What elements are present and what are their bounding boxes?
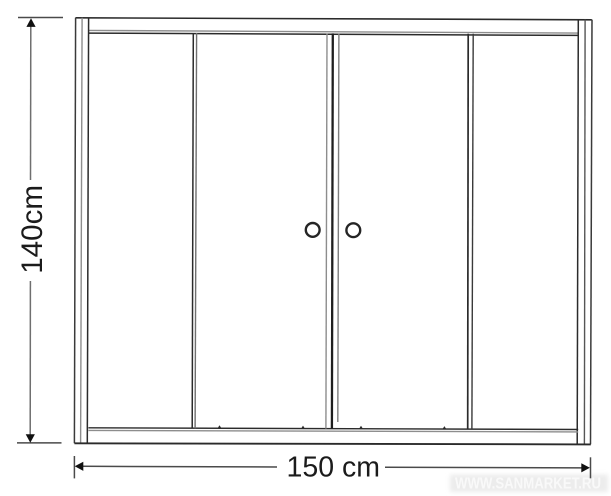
svg-text:150 cm: 150 cm	[287, 452, 380, 484]
svg-text:140cm: 140cm	[16, 185, 49, 274]
svg-text:WWW.SANMARKET.RU: WWW.SANMARKET.RU	[455, 476, 601, 493]
